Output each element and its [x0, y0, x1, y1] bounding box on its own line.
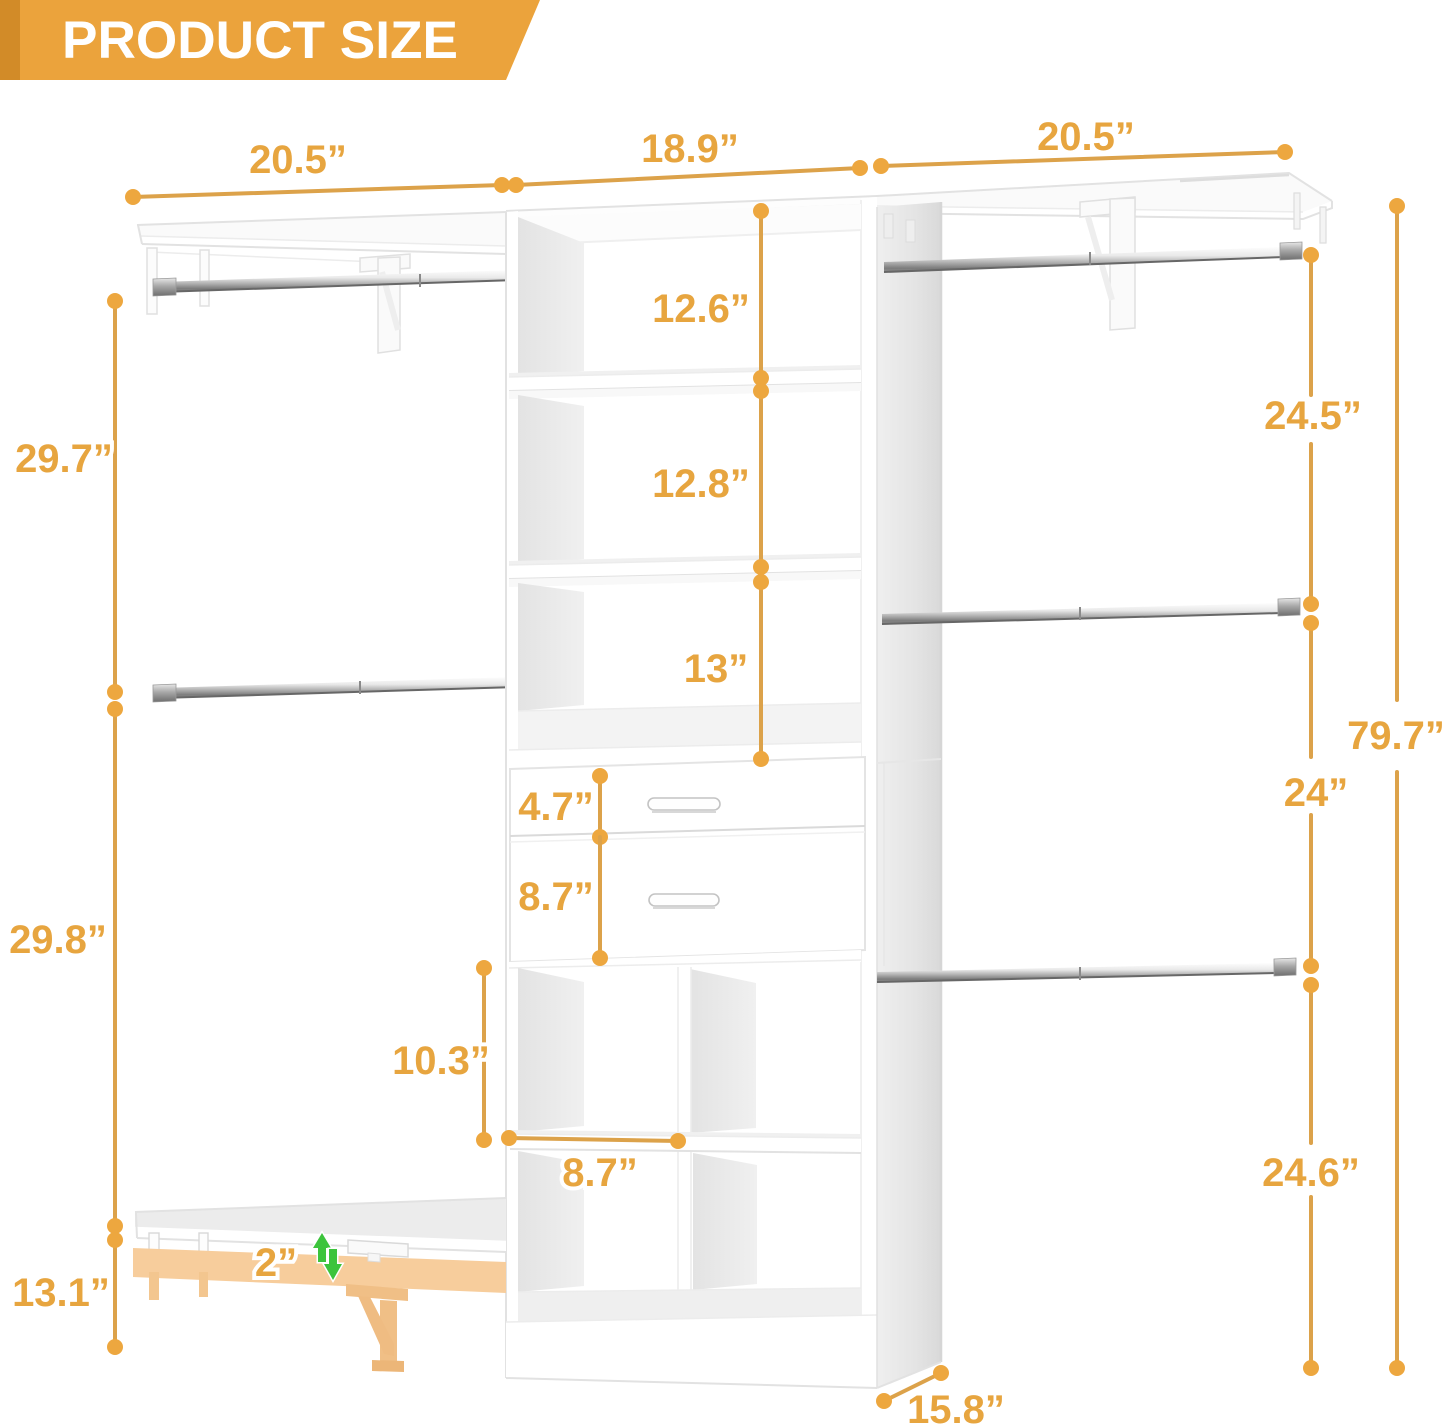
- svg-text:8.7”: 8.7”: [518, 875, 594, 919]
- svg-text:10.3”: 10.3”: [392, 1039, 490, 1083]
- svg-text:15.8”: 15.8”: [907, 1388, 1005, 1425]
- svg-text:20.5”: 20.5”: [1037, 115, 1135, 159]
- svg-text:12.8”: 12.8”: [652, 462, 750, 506]
- svg-text:PRODUCT SIZE: PRODUCT SIZE: [62, 11, 458, 70]
- svg-text:12.6”: 12.6”: [652, 287, 750, 331]
- svg-text:29.7”: 29.7”: [15, 437, 113, 481]
- svg-text:24.6”: 24.6”: [1262, 1151, 1360, 1195]
- svg-text:4.7”: 4.7”: [518, 785, 594, 829]
- svg-text:2”: 2”: [255, 1241, 297, 1285]
- svg-text:13”: 13”: [684, 647, 749, 691]
- svg-text:24.5”: 24.5”: [1264, 394, 1362, 438]
- svg-text:29.8”: 29.8”: [9, 918, 107, 962]
- svg-text:18.9”: 18.9”: [641, 127, 739, 171]
- svg-text:79.7”: 79.7”: [1347, 714, 1445, 758]
- svg-text:20.5”: 20.5”: [249, 138, 347, 182]
- svg-text:13.1”: 13.1”: [12, 1271, 110, 1315]
- svg-text:24”: 24”: [1284, 771, 1349, 815]
- svg-text:8.7”: 8.7”: [562, 1151, 638, 1195]
